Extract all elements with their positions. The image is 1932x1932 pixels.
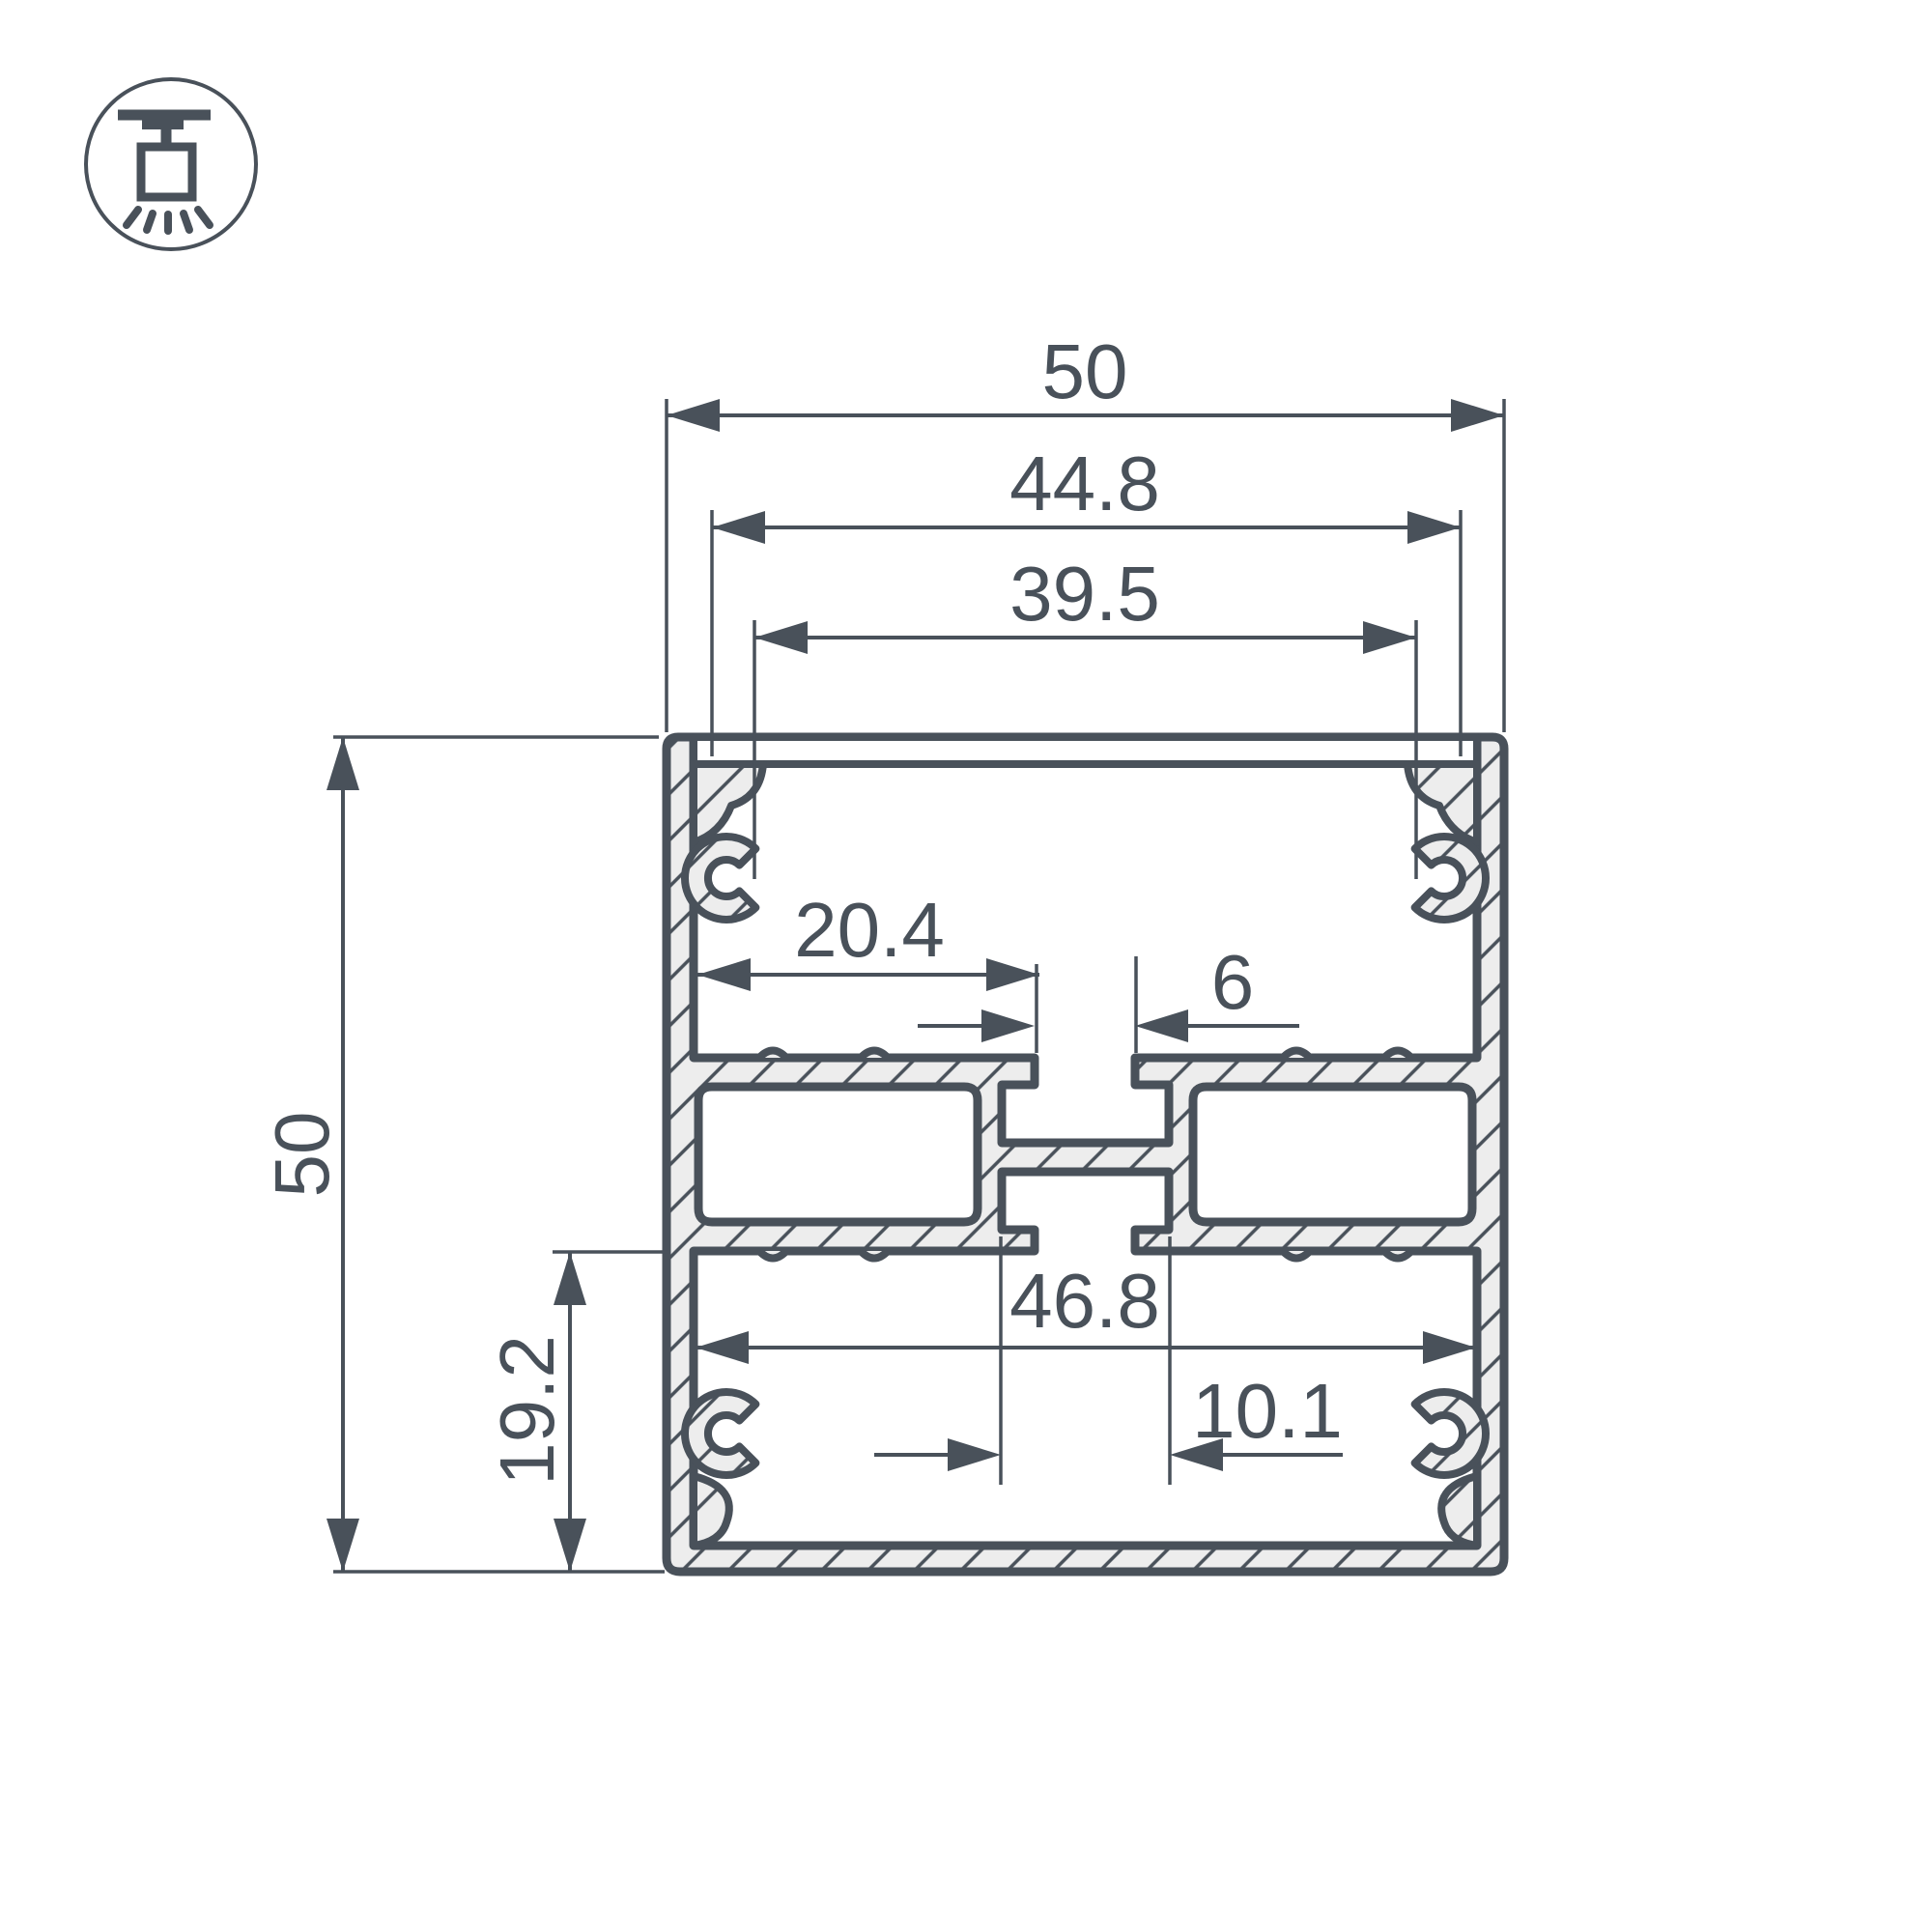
- dim-label-inner-opening-width: 39.5: [1009, 551, 1160, 637]
- dim-label-bottom-chamber-height: 19.2: [484, 1335, 570, 1486]
- profile-cross-section: [667, 737, 1504, 1572]
- clip-right: [1407, 764, 1477, 842]
- screw-channel-upper-left: [685, 837, 755, 920]
- screw-channel-upper-right: [1415, 837, 1486, 920]
- dimension-bottom-inner-width: 46.8: [696, 1258, 1476, 1364]
- clip-left: [694, 764, 763, 842]
- dim-label-bottom-inner-width: 46.8: [1009, 1258, 1160, 1344]
- dim-label-shelf-to-slot: 20.4: [794, 887, 945, 973]
- dim-label-cover-width: 44.8: [1009, 440, 1160, 526]
- dim-label-overall-height: 50: [259, 1112, 345, 1198]
- screw-channel-lower-right: [1415, 1392, 1486, 1475]
- screw-channel-lower-left: [685, 1392, 755, 1475]
- dimension-bottom-chamber-height: 19.2: [484, 1252, 668, 1572]
- dimension-center-slot: 6: [918, 939, 1299, 1053]
- dim-label-center-slot: 6: [1211, 939, 1255, 1025]
- diffuser-cover: [694, 737, 1477, 764]
- dim-label-overall-width: 50: [1042, 328, 1128, 414]
- hook-bottom-left: [694, 1476, 729, 1546]
- fixture-box-icon: [141, 147, 192, 197]
- dimension-inner-opening-width: 39.5: [754, 551, 1416, 879]
- dimension-overall-height: 50: [259, 737, 665, 1572]
- mount-type-icon: [86, 79, 256, 249]
- dimension-overall-width: 50: [667, 328, 1504, 732]
- profile-body: [667, 737, 1504, 1572]
- hook-bottom-right: [1441, 1476, 1477, 1546]
- dim-label-screw-boss-width: 10.1: [1192, 1368, 1343, 1454]
- technical-drawing: 50 44.8 39.5 50 20.4 6: [0, 0, 1932, 1932]
- light-rays-icon: [127, 210, 210, 231]
